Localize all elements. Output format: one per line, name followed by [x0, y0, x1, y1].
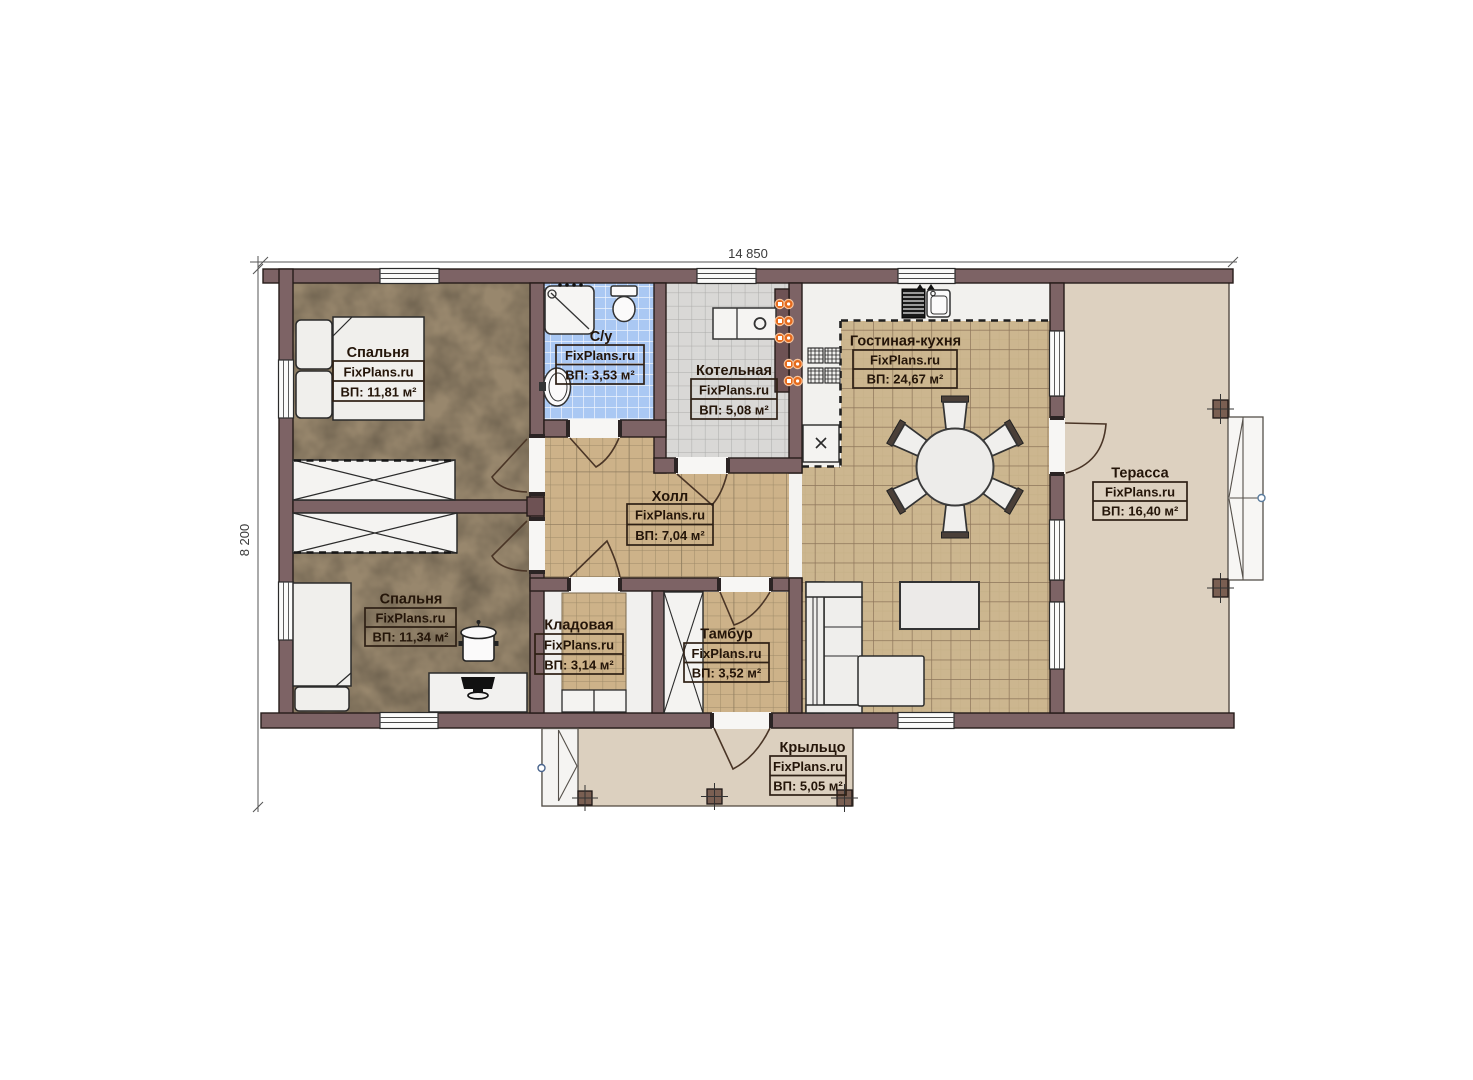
svg-text:ВП: 3,14 м²: ВП: 3,14 м²: [544, 658, 614, 673]
svg-text:Тамбур: Тамбур: [700, 627, 753, 643]
svg-text:FixPlans.ru: FixPlans.ru: [343, 365, 413, 380]
svg-text:ВП: 3,53 м²: ВП: 3,53 м²: [565, 368, 635, 383]
svg-text:8 200: 8 200: [237, 524, 252, 557]
svg-text:Гостиная-кухня: Гостиная-кухня: [850, 334, 961, 350]
svg-text:FixPlans.ru: FixPlans.ru: [1105, 485, 1175, 500]
svg-text:ВП: 5,05 м²: ВП: 5,05 м²: [773, 779, 843, 794]
svg-text:ВП: 5,08 м²: ВП: 5,08 м²: [699, 403, 769, 418]
svg-text:FixPlans.ru: FixPlans.ru: [544, 638, 614, 653]
svg-text:ВП: 16,40 м²: ВП: 16,40 м²: [1102, 504, 1179, 519]
svg-text:FixPlans.ru: FixPlans.ru: [870, 353, 940, 368]
svg-text:Кладовая: Кладовая: [544, 618, 613, 634]
svg-text:С/у: С/у: [590, 329, 613, 345]
svg-text:Спальня: Спальня: [380, 592, 443, 608]
svg-text:Холл: Холл: [652, 489, 688, 505]
svg-text:FixPlans.ru: FixPlans.ru: [635, 508, 705, 523]
svg-text:Спальня: Спальня: [347, 345, 410, 361]
svg-text:FixPlans.ru: FixPlans.ru: [565, 348, 635, 363]
svg-text:14 850: 14 850: [728, 246, 768, 261]
svg-text:Котельная: Котельная: [696, 363, 772, 379]
svg-text:Крыльцо: Крыльцо: [780, 740, 846, 756]
svg-text:ВП: 24,67 м²: ВП: 24,67 м²: [867, 372, 944, 387]
svg-text:FixPlans.ru: FixPlans.ru: [699, 383, 769, 398]
svg-text:FixPlans.ru: FixPlans.ru: [691, 646, 761, 661]
svg-text:ВП: 3,52 м²: ВП: 3,52 м²: [692, 666, 762, 681]
svg-text:ВП: 11,34 м²: ВП: 11,34 м²: [372, 630, 449, 645]
svg-text:FixPlans.ru: FixPlans.ru: [375, 611, 445, 626]
svg-text:FixPlans.ru: FixPlans.ru: [773, 759, 843, 774]
svg-text:Терасса: Терасса: [1111, 466, 1169, 482]
svg-text:ВП: 7,04 м²: ВП: 7,04 м²: [635, 528, 705, 543]
svg-text:ВП: 11,81 м²: ВП: 11,81 м²: [340, 385, 417, 400]
